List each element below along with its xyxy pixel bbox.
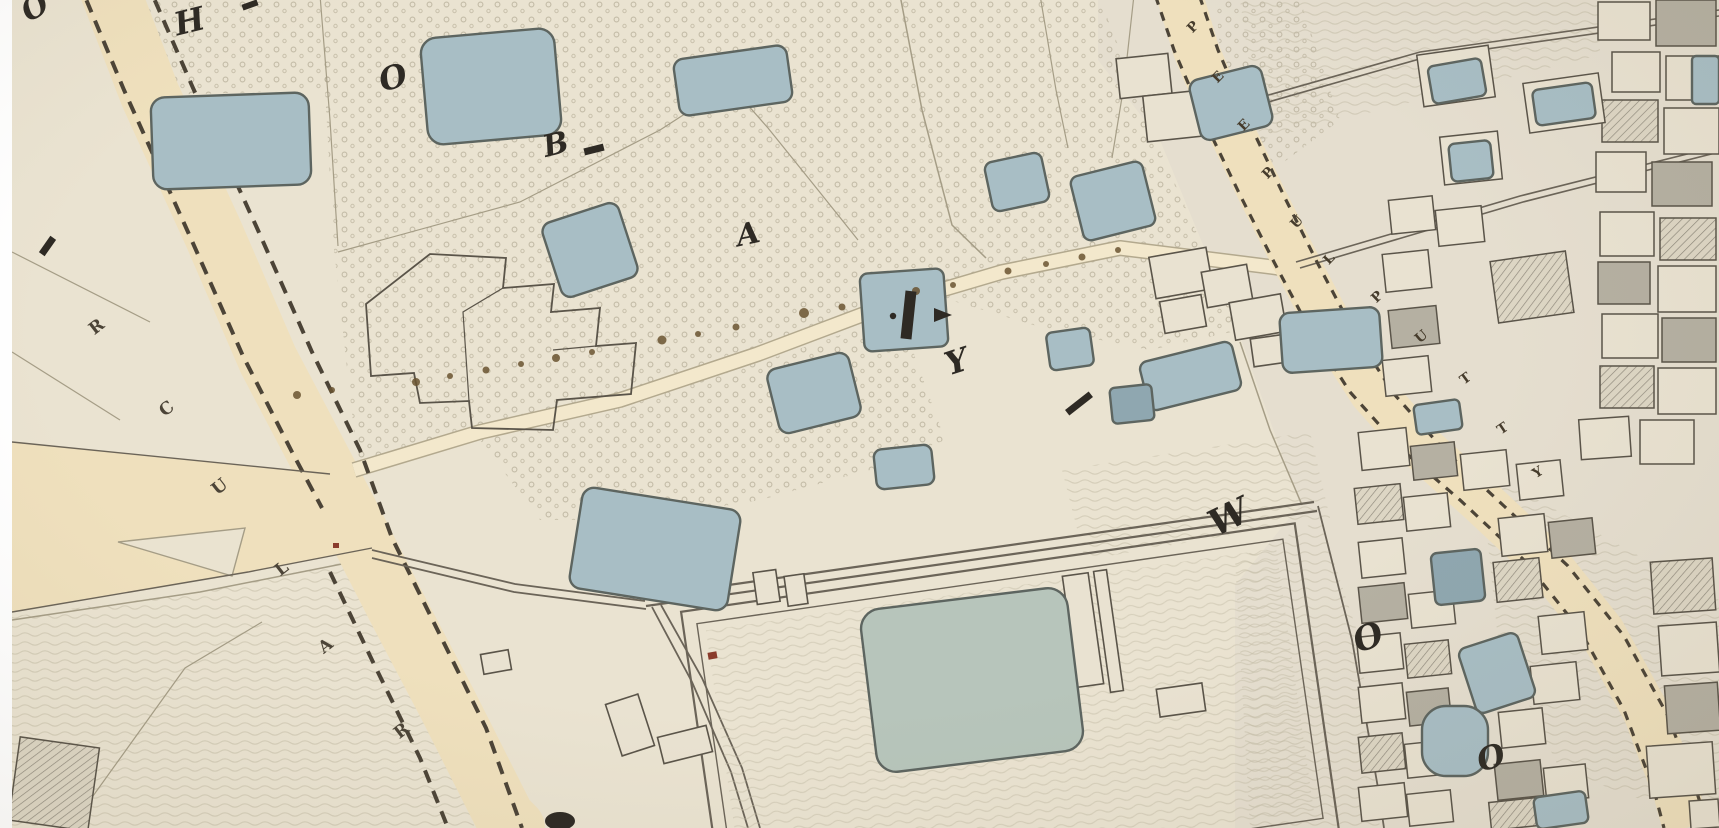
city-block bbox=[1689, 799, 1719, 828]
pond-tank bbox=[1427, 58, 1487, 105]
city-block bbox=[1460, 450, 1510, 491]
pond-tank bbox=[1430, 549, 1485, 606]
pond-tank bbox=[1413, 399, 1463, 435]
pond-tank bbox=[1532, 82, 1596, 126]
city-block bbox=[1548, 518, 1596, 558]
city-block bbox=[1662, 318, 1716, 362]
city-block bbox=[1598, 2, 1650, 40]
ink-dot bbox=[890, 313, 896, 319]
road-letter-dot bbox=[589, 349, 595, 355]
city-block bbox=[1493, 558, 1543, 603]
road-letter-dot bbox=[733, 324, 740, 331]
historical-city-map: OHOBAYWOORCULARPEEPULPUTTY bbox=[0, 0, 1719, 828]
city-block bbox=[1602, 314, 1658, 358]
city-block bbox=[1650, 558, 1715, 614]
compound-building bbox=[1156, 683, 1205, 717]
city-block bbox=[1354, 484, 1404, 525]
city-block bbox=[1388, 196, 1435, 234]
road-letter-dot bbox=[293, 391, 301, 399]
city-block bbox=[1538, 612, 1588, 655]
city-block bbox=[1358, 428, 1410, 471]
city-block bbox=[1358, 783, 1407, 822]
small-building bbox=[480, 650, 511, 675]
pond-tank bbox=[1046, 327, 1095, 371]
city-block bbox=[1658, 368, 1716, 414]
city-block bbox=[1358, 733, 1406, 773]
road-letter-dot bbox=[552, 354, 560, 362]
city-block bbox=[1358, 683, 1406, 723]
road-letter-dot bbox=[412, 378, 420, 386]
city-block bbox=[1579, 416, 1632, 459]
road-letter-dot bbox=[950, 282, 956, 288]
city-block bbox=[1600, 366, 1654, 408]
road-letter-dot bbox=[1079, 254, 1086, 261]
city-block bbox=[1410, 442, 1457, 480]
city-block bbox=[1600, 212, 1654, 256]
city-block bbox=[1598, 262, 1650, 304]
pond-tank bbox=[1279, 307, 1383, 374]
road-letter-dot bbox=[329, 387, 335, 393]
pond-tank bbox=[873, 444, 935, 490]
pond-tank bbox=[983, 152, 1050, 213]
city-block bbox=[1403, 493, 1450, 531]
road-letter-dot bbox=[447, 373, 453, 379]
road-letter-dot bbox=[695, 331, 701, 337]
historical-map-screenshot: OHOBAYWOORCULARPEEPULPUTTY bbox=[0, 0, 1719, 828]
road-letter-dot bbox=[658, 336, 667, 345]
road-letter-dot bbox=[1115, 247, 1121, 253]
small-building bbox=[1160, 295, 1207, 334]
pond-tank bbox=[1533, 791, 1589, 828]
city-block bbox=[1656, 0, 1716, 46]
city-block bbox=[1640, 420, 1694, 464]
city-block bbox=[1382, 356, 1432, 397]
city-block bbox=[1404, 640, 1451, 678]
page-left-margin bbox=[0, 0, 12, 828]
city-block bbox=[1658, 266, 1716, 312]
city-block bbox=[1664, 108, 1719, 154]
small-building bbox=[784, 574, 808, 606]
small-building bbox=[1116, 53, 1172, 98]
city-block bbox=[1660, 218, 1716, 260]
city-block bbox=[1388, 306, 1440, 349]
city-block bbox=[1382, 250, 1432, 293]
road-letter-dot bbox=[483, 367, 490, 374]
city-block bbox=[1498, 708, 1546, 748]
road-letter-dot bbox=[799, 308, 809, 318]
pond-tank bbox=[1448, 140, 1494, 182]
city-block bbox=[1602, 100, 1658, 142]
city-block bbox=[1664, 682, 1719, 734]
city-block bbox=[1435, 206, 1485, 247]
road-letter-dot bbox=[1005, 268, 1012, 275]
small-building bbox=[1229, 294, 1287, 340]
road-letter-dot bbox=[518, 361, 524, 367]
pond-tank bbox=[150, 92, 311, 189]
city-block bbox=[1530, 662, 1580, 705]
city-block bbox=[1596, 152, 1646, 192]
city-block bbox=[9, 737, 100, 828]
city-block bbox=[1358, 538, 1406, 578]
pond-tank bbox=[420, 27, 563, 145]
road-letter-dot bbox=[1043, 261, 1049, 267]
city-block bbox=[1646, 742, 1715, 798]
city-block bbox=[1490, 251, 1574, 323]
pond-tank bbox=[1692, 56, 1719, 104]
city-block bbox=[1406, 790, 1453, 826]
small-building bbox=[753, 570, 780, 605]
pond-tank bbox=[1109, 384, 1155, 424]
city-block bbox=[1498, 514, 1548, 557]
road-letter-dot bbox=[839, 304, 846, 311]
city-block bbox=[1612, 52, 1660, 92]
red-survey-mark bbox=[333, 543, 339, 548]
city-block bbox=[1489, 798, 1540, 828]
pond-tank bbox=[859, 586, 1085, 774]
city-block bbox=[1652, 162, 1712, 206]
city-block bbox=[1658, 622, 1719, 676]
